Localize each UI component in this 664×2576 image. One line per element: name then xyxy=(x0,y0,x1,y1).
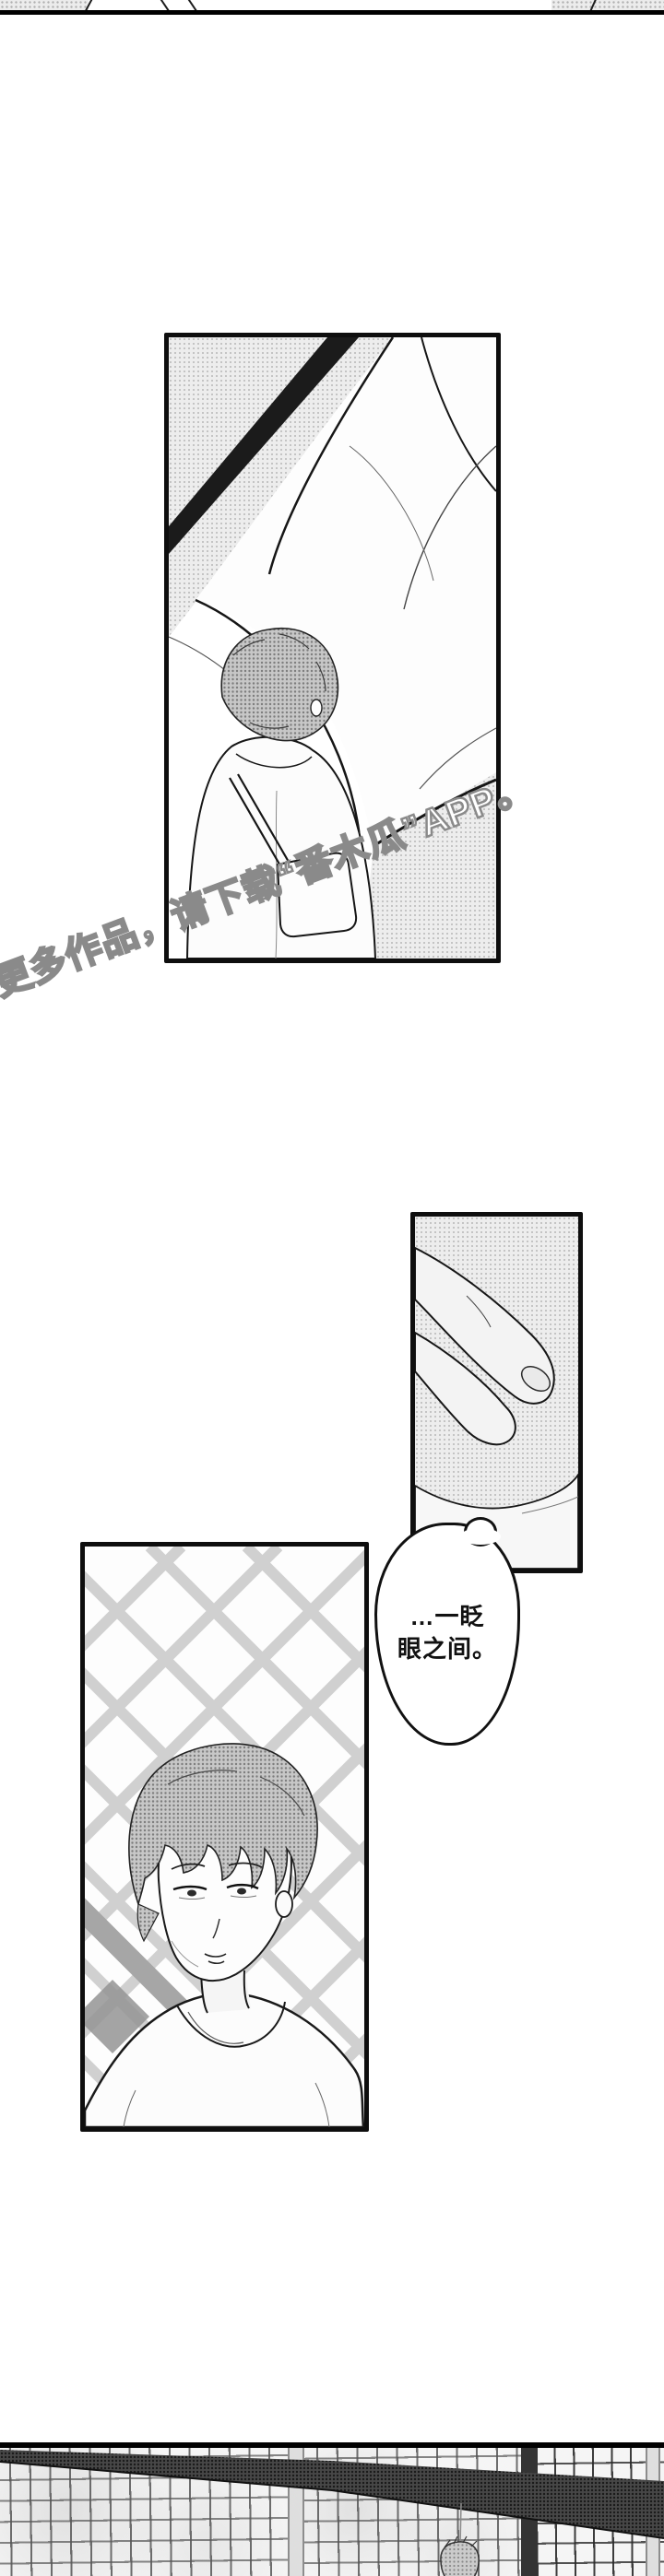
panel-shoji-room xyxy=(0,2442,664,2576)
top-tone-left xyxy=(0,0,89,10)
panel-hand-closeup xyxy=(410,1212,583,1573)
previous-panel-sliver xyxy=(0,0,664,15)
page-divider-bar xyxy=(0,10,664,15)
hand-closeup-art xyxy=(415,1217,578,1569)
boy-portrait-art xyxy=(85,1547,364,2127)
speech-bubble-text: …一眨 眼之间。 xyxy=(377,1525,517,1665)
speech-bubble: …一眨 眼之间。 xyxy=(374,1523,520,1746)
speech-line-1: …一眨 xyxy=(377,1601,517,1633)
speech-line-2: 眼之间。 xyxy=(377,1633,517,1665)
panel-boy-portrait xyxy=(80,1542,369,2132)
manga-page: …一眨 眼之间。 xyxy=(0,0,664,2576)
room-overlay-art xyxy=(0,2448,664,2576)
